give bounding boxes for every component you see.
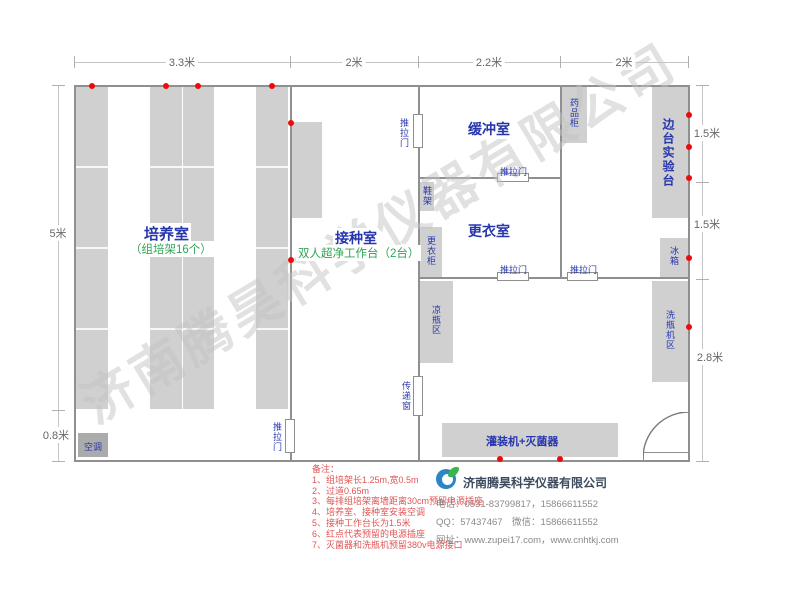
dim-left-1: 5米 [46, 225, 69, 241]
sliding-door-label-3: 推拉门 [500, 263, 527, 276]
dim-tick [688, 56, 689, 68]
power-outlet-dot [163, 83, 169, 89]
wall-cultivation-inoculation [290, 85, 292, 462]
dim-top-1: 3.3米 [166, 54, 198, 70]
medicine-cabinet-label: 药品柜 [569, 98, 578, 128]
wall-right [688, 85, 690, 462]
power-outlet-dot [89, 83, 95, 89]
dim-tick [74, 56, 75, 68]
fridge-label: 冰箱 [669, 246, 678, 266]
clean-workbench [292, 122, 322, 218]
dim-right-3: 2.8米 [694, 349, 726, 365]
dim-left-2: 0.8米 [40, 427, 72, 443]
dim-right-2: 1.5米 [691, 216, 723, 232]
culture-rack-column-4 [256, 87, 288, 409]
company-qq-wechat: QQ：57437467 微信：15866611552 [436, 514, 598, 528]
power-outlet-dot [686, 255, 692, 261]
wardrobe-label: 更衣柜 [426, 236, 435, 266]
shoe-rack-label: 鞋架 [422, 186, 431, 206]
washer-area-label: 洗瓶机区 [665, 310, 674, 350]
dim-tick [696, 279, 709, 280]
power-outlet-dot [557, 456, 563, 462]
wall-buffer-changing [418, 177, 562, 179]
dim-top-4: 2米 [612, 54, 635, 70]
company-name: 济南腾昊科学仪器有限公司 [463, 474, 607, 491]
dimension-line-left [58, 85, 59, 462]
wall-bottom [74, 460, 690, 462]
power-outlet-dot [497, 456, 503, 462]
dim-tick [560, 56, 561, 68]
sliding-door-label-5: 推拉门 [272, 422, 281, 452]
power-outlet-dot [195, 83, 201, 89]
cooling-area-label: 凉瓶区 [431, 305, 440, 335]
pass-window-label: 传递窗 [401, 381, 410, 411]
sliding-door-inoculation-buffer [413, 114, 423, 148]
room-label-side-bench: 边台实验台 [662, 118, 674, 188]
company-phone: 电话：0531-83799817，15866611552 [436, 496, 598, 510]
dim-top-3: 2.2米 [473, 54, 505, 70]
dim-tick [696, 461, 709, 462]
sliding-door-label-4: 推拉门 [570, 263, 597, 276]
company-website: 网址：www.zupei17.com，www.cnhtkj.com [436, 532, 619, 546]
pass-through-window [413, 376, 423, 416]
room-label-buffer: 缓冲室 [466, 119, 512, 139]
dim-tick [696, 85, 709, 86]
dimension-line-right [702, 85, 703, 462]
dim-tick [418, 56, 419, 68]
power-outlet-dot [686, 324, 692, 330]
wall-buffer-right [560, 85, 562, 279]
power-outlet-dot [288, 120, 294, 126]
power-outlet-dot [686, 144, 692, 150]
power-outlet-dot [269, 83, 275, 89]
room-sublabel-inoculation: 双人超净工作台（2台） [296, 245, 421, 261]
sliding-door-cultivation-inoculation [285, 419, 295, 453]
dim-right-1: 1.5米 [691, 125, 723, 141]
wall-left [74, 85, 76, 462]
power-outlet-dot [686, 175, 692, 181]
wall-changing-bottomroom [418, 277, 690, 279]
dim-tick [290, 56, 291, 68]
culture-rack-column-1 [74, 87, 108, 409]
dim-tick [52, 461, 65, 462]
dim-tick [52, 410, 65, 411]
dim-top-2: 2米 [342, 54, 365, 70]
power-outlet-dot [288, 257, 294, 263]
company-logo-icon [436, 466, 460, 490]
dim-tick [52, 85, 65, 86]
power-outlet-dot [686, 112, 692, 118]
filling-machine-label: 灌装机+灭菌器 [486, 433, 558, 449]
sliding-door-label-2: 推拉门 [500, 165, 527, 178]
dim-tick [696, 182, 709, 183]
room-sublabel-cultivation: （组培架16个） [128, 241, 214, 257]
room-label-changing: 更衣室 [466, 221, 512, 241]
air-conditioner-label: 空调 [84, 440, 102, 453]
entrance-door-swing-arc [643, 412, 689, 458]
sliding-door-label-1: 推拉门 [399, 118, 408, 148]
